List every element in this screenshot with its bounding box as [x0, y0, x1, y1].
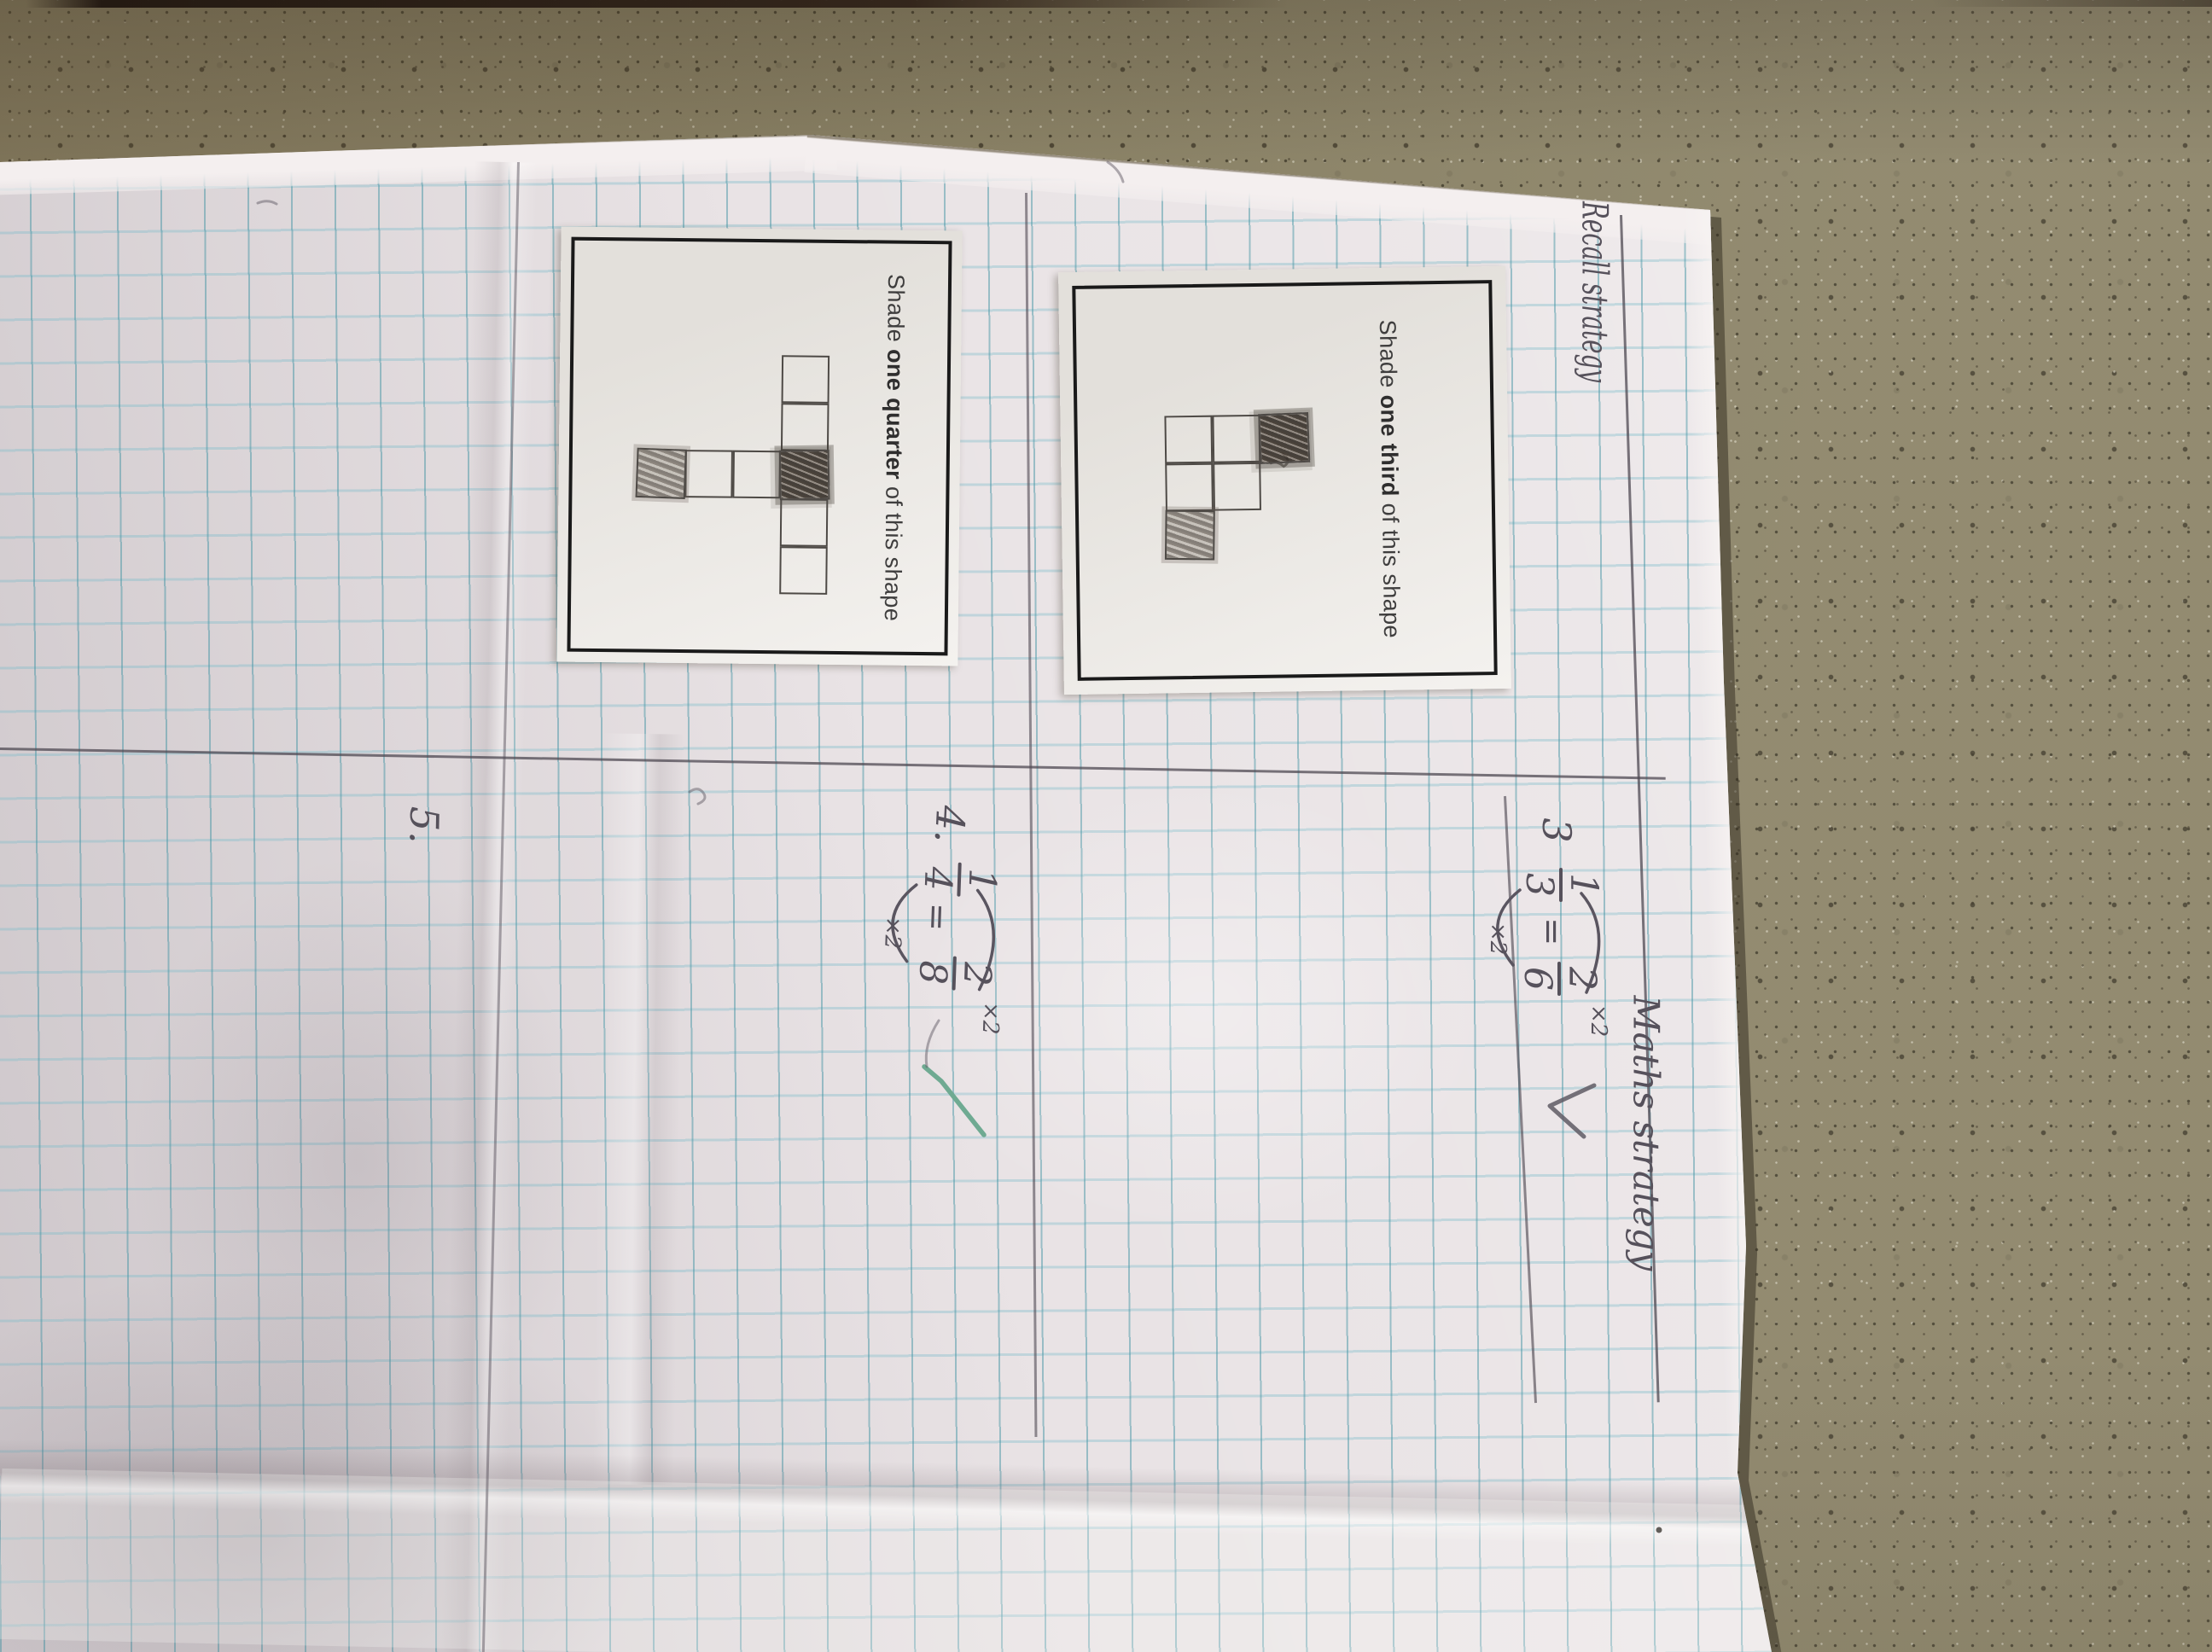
- heading-recall-strategy-text: Recall strategy: [1575, 201, 1616, 382]
- card-border: Shade one third of this shape: [1072, 280, 1497, 681]
- shape-cell: [780, 498, 829, 547]
- shape-cell: [782, 355, 830, 404]
- heading-maths-strategy: Maths strategy: [1626, 996, 1668, 1271]
- question-number-5: 5.: [401, 806, 448, 845]
- denominator: 4: [915, 866, 959, 892]
- fraction-two-sixths: 2 6: [1519, 955, 1598, 1003]
- times-two-top: ×2: [977, 1002, 1004, 1035]
- fraction-two-eighths: 2 8: [913, 948, 994, 998]
- shape-cell: [779, 546, 828, 595]
- shape-cell: [1165, 463, 1214, 512]
- shape-cell: [1165, 510, 1215, 561]
- shape-cell: [732, 451, 781, 499]
- third-shape: [1075, 283, 1493, 678]
- times-two-bottom: ×2: [879, 916, 905, 950]
- fraction-one-quarter: 1 4: [918, 854, 999, 905]
- shape-cell: [1258, 412, 1310, 464]
- equation-one-quarter-content: ×2 ×2 1 4 = 2 8: [856, 841, 1026, 1067]
- denominator: 3: [1517, 873, 1561, 897]
- numerator: 1: [960, 868, 1004, 893]
- question-number-3: 3: [1534, 817, 1580, 842]
- shape-cell: [1212, 415, 1260, 463]
- times-two-top: ×2: [1586, 1004, 1611, 1037]
- photo-of-exercise-book: Recall strategy Maths strategy 3 4. 5. ×…: [0, 0, 2212, 1652]
- worksheet-card-quarter-paper: Shade one quarter of this shape: [556, 227, 962, 666]
- fraction-one-third: 1 3: [1521, 861, 1600, 909]
- quarter-shape: [571, 241, 949, 653]
- denominator: 6: [1516, 967, 1559, 991]
- numerator: 2: [955, 962, 999, 987]
- shape-cell: [1164, 416, 1213, 464]
- shape-cell: [781, 403, 829, 451]
- shape-cell: [684, 450, 733, 498]
- question-number-4: 4.: [926, 805, 974, 845]
- counter-edge-shadow: [26, 0, 1289, 8]
- equals-sign: =: [1532, 917, 1571, 946]
- card-border: Shade one quarter of this shape: [567, 237, 952, 656]
- denominator: 8: [910, 960, 954, 986]
- worksheet-card-third-paper: Shade one third of this shape: [1058, 266, 1511, 695]
- shape-cell: [635, 448, 686, 499]
- equals-sign: =: [917, 902, 957, 932]
- shape-cell: [1213, 462, 1261, 511]
- counter-edge-shadow-right: [1930, 0, 2212, 7]
- times-two-bottom: ×2: [1485, 922, 1511, 955]
- numerator: 2: [1560, 967, 1604, 991]
- numerator: 1: [1562, 873, 1605, 897]
- equation-one-third-content: ×2 ×2 1 3 = 2 6: [1464, 849, 1626, 1071]
- shape-cell: [779, 450, 830, 501]
